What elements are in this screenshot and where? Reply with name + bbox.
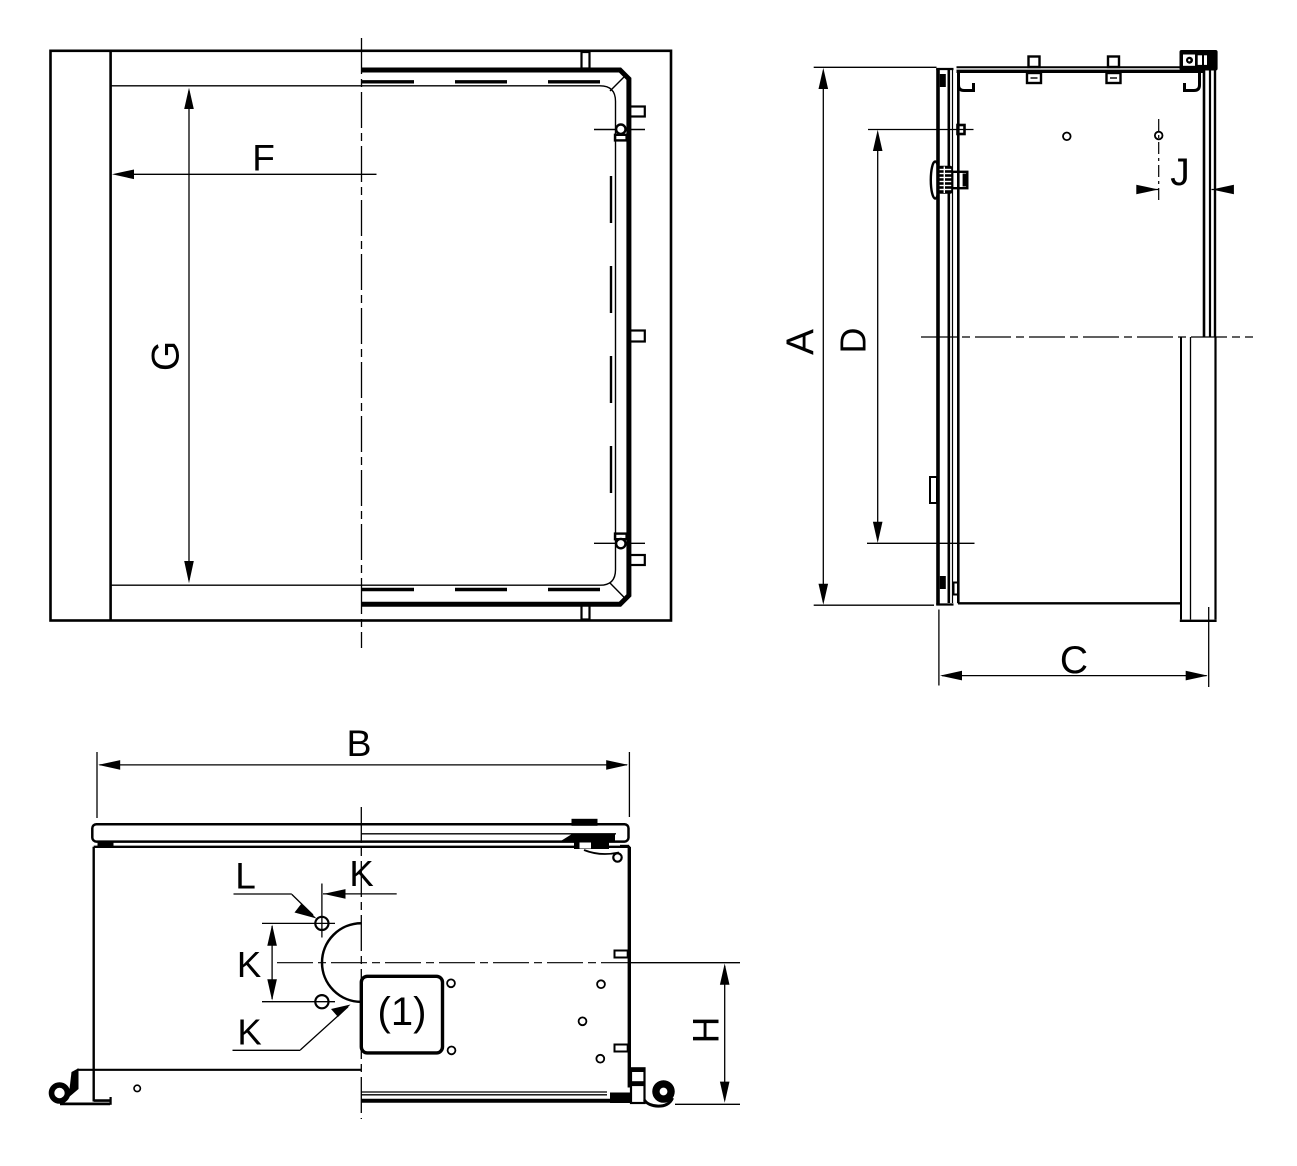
svg-text:A: A: [780, 329, 823, 355]
svg-text:G: G: [145, 341, 188, 371]
svg-text:B: B: [346, 722, 371, 764]
svg-text:L: L: [235, 856, 256, 897]
svg-text:K: K: [237, 1012, 261, 1053]
svg-text:C: C: [1060, 639, 1088, 682]
svg-text:F: F: [252, 138, 275, 179]
svg-text:K: K: [349, 853, 373, 894]
svg-text:J: J: [1170, 151, 1190, 194]
svg-text:(1): (1): [378, 990, 427, 1034]
svg-text:H: H: [686, 1017, 727, 1044]
svg-text:D: D: [833, 328, 874, 354]
svg-text:K: K: [237, 944, 261, 985]
